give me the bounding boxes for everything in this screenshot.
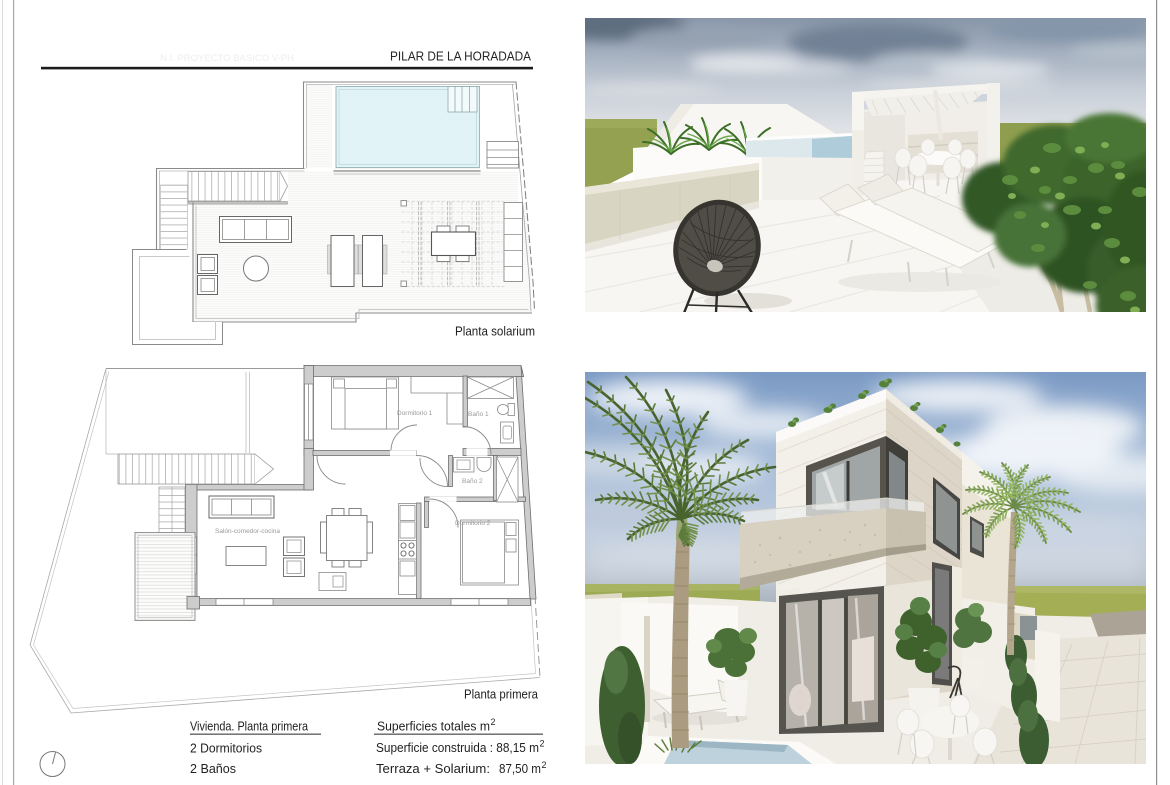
svg-text:Dormitorio 2: Dormitorio 2: [455, 520, 491, 527]
svg-text:2: 2: [542, 760, 547, 770]
svg-text:Terraza + Solarium:: Terraza + Solarium:: [376, 761, 490, 776]
svg-text:Vivienda. Planta primera: Vivienda. Planta primera: [190, 719, 309, 734]
svg-text:Baño 2: Baño 2: [462, 478, 483, 485]
svg-text:Planta solarium: Planta solarium: [455, 325, 535, 339]
svg-text:2: 2: [491, 717, 496, 727]
svg-text:2 Baños: 2 Baños: [190, 761, 236, 776]
svg-text:N.I. PROYECTO BASICO V-PH: N.I. PROYECTO BASICO V-PH: [160, 53, 294, 64]
svg-text:Superficie construida : 88,15: Superficie construida : 88,15 m: [376, 740, 539, 755]
svg-text:2 Dormitorios: 2 Dormitorios: [190, 741, 262, 756]
svg-text:87,50 m: 87,50 m: [499, 761, 541, 776]
svg-text:Dormitorio 1: Dormitorio 1: [397, 410, 433, 417]
svg-text:Baño 1: Baño 1: [468, 411, 489, 418]
svg-text:Salón-comedor-cocina: Salón-comedor-cocina: [215, 528, 280, 535]
svg-text:Superficies totales m: Superficies totales m: [377, 719, 490, 734]
svg-text:PILAR DE LA HORADADA: PILAR DE LA HORADADA: [390, 49, 531, 64]
svg-text:2: 2: [540, 739, 545, 749]
svg-text:Planta primera: Planta primera: [464, 688, 538, 702]
